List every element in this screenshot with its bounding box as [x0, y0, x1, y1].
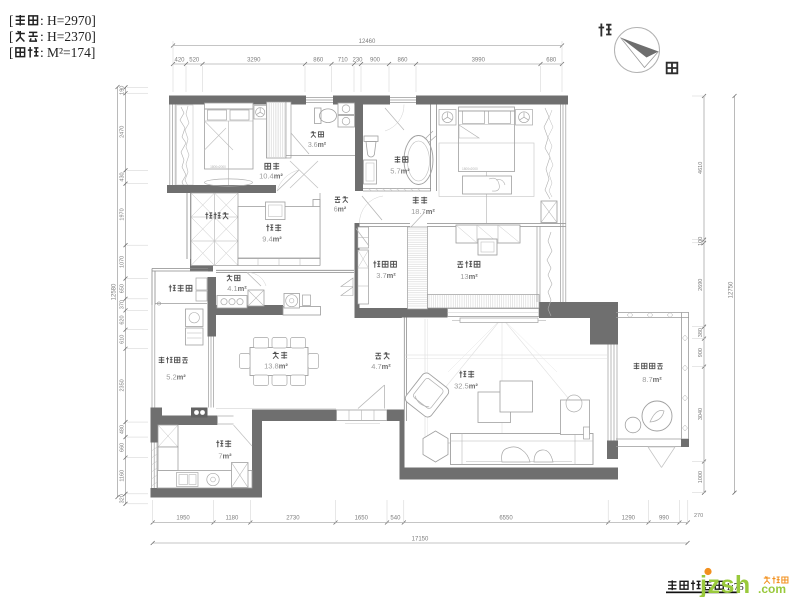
svg-text:2470: 2470 — [120, 126, 126, 138]
svg-text:17150: 17150 — [412, 537, 429, 543]
svg-text:[: [ — [9, 13, 14, 28]
svg-text:430: 430 — [120, 172, 126, 181]
svg-text:9.4m²: 9.4m² — [262, 235, 282, 244]
svg-text:620: 620 — [120, 315, 126, 324]
svg-text:3.7m²: 3.7m² — [376, 271, 396, 280]
svg-text:520: 520 — [189, 58, 200, 64]
svg-text:860: 860 — [397, 58, 408, 64]
svg-text:680: 680 — [546, 58, 557, 64]
svg-text:H=2970]: H=2970] — [47, 13, 96, 28]
svg-text::: : — [40, 29, 44, 44]
svg-text:1650: 1650 — [355, 516, 369, 522]
svg-text:190: 190 — [120, 86, 126, 95]
svg-text:jzsh: jzsh — [699, 571, 751, 597]
svg-text:610: 610 — [120, 335, 126, 344]
svg-text:4.7m²: 4.7m² — [371, 362, 391, 371]
svg-text:5.7m²: 5.7m² — [390, 167, 410, 176]
svg-text:H=2370]: H=2370] — [47, 29, 96, 44]
svg-text:13.8m²: 13.8m² — [264, 362, 288, 371]
svg-text:1160: 1160 — [120, 470, 126, 482]
svg-text:6m²: 6m² — [334, 207, 347, 214]
svg-text:[: [ — [9, 45, 14, 60]
svg-text:8.7m²: 8.7m² — [642, 375, 662, 384]
svg-text::: : — [40, 13, 44, 28]
svg-text:1950: 1950 — [176, 516, 190, 522]
svg-text:3.6m²: 3.6m² — [308, 142, 327, 149]
svg-text:380: 380 — [698, 328, 704, 337]
svg-text:650: 650 — [120, 284, 126, 293]
svg-text:270: 270 — [694, 513, 703, 519]
svg-text:M²=174]: M²=174] — [47, 45, 95, 60]
svg-text:990: 990 — [659, 516, 670, 522]
svg-text:540: 540 — [390, 516, 401, 522]
svg-text:710: 710 — [338, 58, 349, 64]
svg-text:5.2m²: 5.2m² — [166, 373, 186, 382]
svg-text:320: 320 — [120, 494, 126, 503]
svg-text:12580: 12580 — [112, 283, 118, 300]
svg-text:1070: 1070 — [120, 256, 126, 268]
svg-text:2730: 2730 — [286, 516, 300, 522]
svg-text:7m²: 7m² — [218, 452, 232, 461]
svg-text:.com: .com — [758, 582, 786, 596]
svg-text:1970: 1970 — [120, 208, 126, 220]
svg-text:[: [ — [9, 29, 14, 44]
svg-text:1180: 1180 — [225, 516, 239, 522]
svg-text:3040: 3040 — [698, 408, 704, 420]
svg-text:1290: 1290 — [622, 516, 636, 522]
svg-text:660: 660 — [120, 443, 126, 452]
svg-text:480: 480 — [120, 425, 126, 434]
svg-text:1000: 1000 — [698, 471, 704, 483]
svg-text:3290: 3290 — [247, 58, 261, 64]
svg-text:1800x2000: 1800x2000 — [210, 165, 226, 169]
svg-text:12750: 12750 — [729, 281, 735, 298]
svg-text:1800x2000: 1800x2000 — [462, 167, 478, 171]
svg-text:3990: 3990 — [472, 58, 486, 64]
svg-text:370: 370 — [120, 300, 126, 309]
svg-text:4.1m²: 4.1m² — [227, 284, 247, 293]
svg-text:230: 230 — [352, 58, 363, 64]
svg-text:420: 420 — [174, 58, 185, 64]
svg-text:2690: 2690 — [698, 279, 704, 291]
svg-text::: : — [40, 45, 44, 60]
svg-text:860: 860 — [313, 58, 324, 64]
svg-text:13m²: 13m² — [460, 272, 478, 281]
svg-text:18.7m²: 18.7m² — [411, 207, 435, 216]
svg-text:12460: 12460 — [359, 39, 376, 45]
svg-text:100: 100 — [698, 237, 704, 246]
svg-text:4610: 4610 — [698, 162, 704, 174]
svg-text:900: 900 — [698, 348, 704, 357]
svg-text:2350: 2350 — [120, 379, 126, 391]
svg-text:10.4m²: 10.4m² — [259, 172, 283, 181]
svg-text:32.5m²: 32.5m² — [454, 382, 478, 391]
svg-text:900: 900 — [370, 58, 381, 64]
svg-text:6550: 6550 — [499, 516, 513, 522]
